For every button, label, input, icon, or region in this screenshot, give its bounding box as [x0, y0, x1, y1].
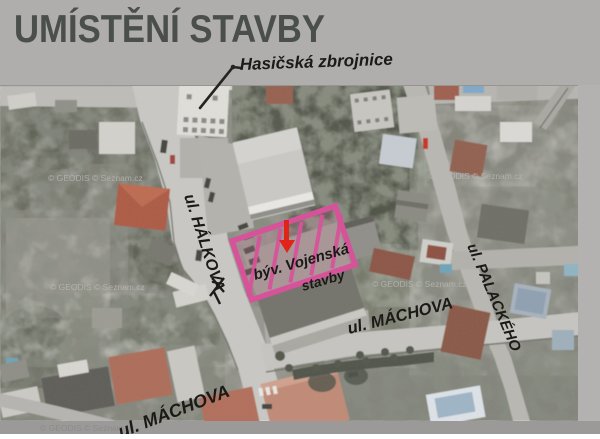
svg-text:© GEODIS © Seznam.cz: © GEODIS © Seznam.cz [50, 282, 145, 292]
svg-text:UMÍSTĚNÍ STAVBY: UMÍSTĚNÍ STAVBY [14, 7, 325, 51]
svg-text:© GEODIS © Seznam.cz: © GEODIS © Seznam.cz [372, 279, 467, 289]
svg-text:© GEODIS © Seznam.cz: © GEODIS © Seznam.cz [428, 171, 523, 181]
svg-text:© GEODIS © Seznam.cz: © GEODIS © Seznam.cz [48, 173, 143, 183]
